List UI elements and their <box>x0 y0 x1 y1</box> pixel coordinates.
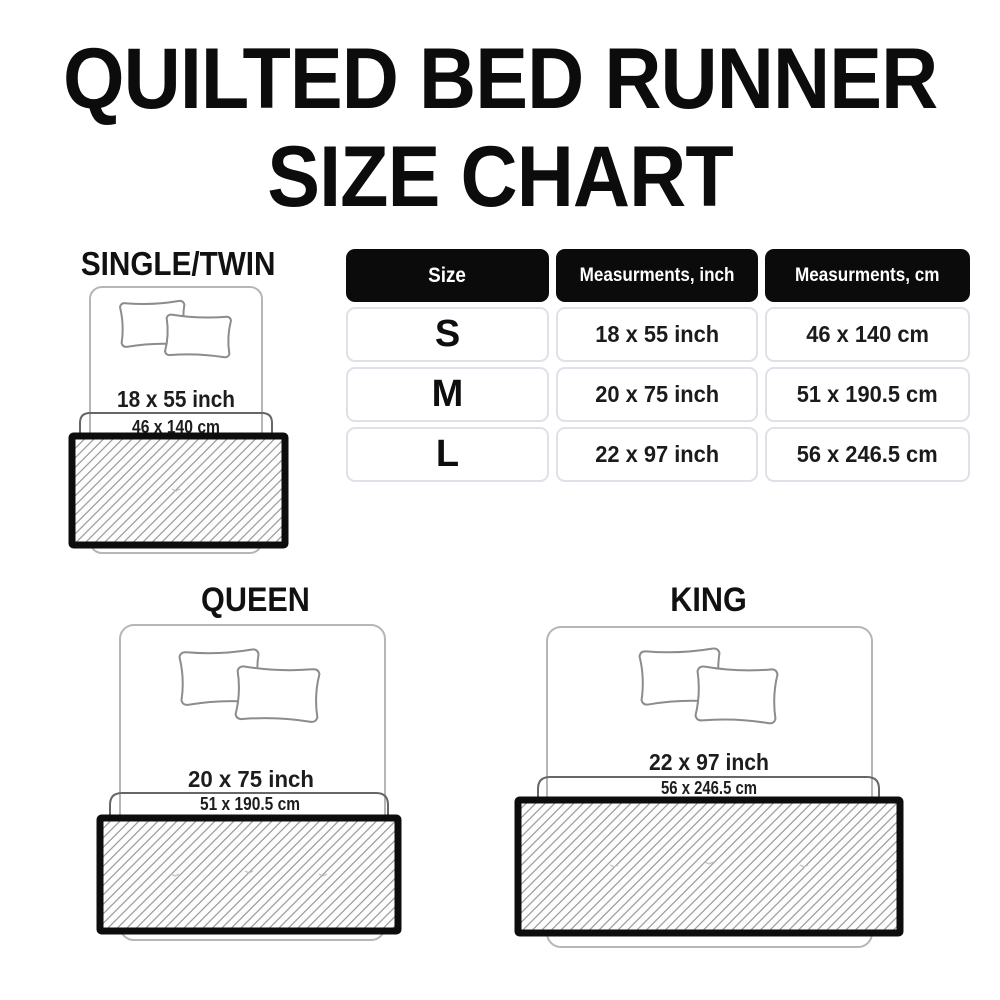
cell-inch: 18 x 55 inch <box>556 307 758 362</box>
queen-cm-dimension: 51 x 190.5 cm <box>200 793 300 814</box>
cell-cm: 56 x 246.5 cm <box>765 427 970 482</box>
queen-bed-diagram: 20 x 75 inch 51 x 190.5 cm <box>93 620 417 957</box>
cell-cm: 51 x 190.5 cm <box>765 367 970 422</box>
cell-inch: 20 x 75 inch <box>556 367 758 422</box>
table-row-m: M 20 x 75 inch 51 x 190.5 cm <box>346 367 970 422</box>
king-label: KING <box>510 580 906 620</box>
page-title-line1: QUILTED BED RUNNER <box>0 30 1000 128</box>
runner-swatch <box>518 800 900 933</box>
cell-inch: 22 x 97 inch <box>556 427 758 482</box>
table-row-s: S 18 x 55 inch 46 x 140 cm <box>346 307 970 362</box>
pillow-icon <box>695 666 777 723</box>
page-title-line2: SIZE CHART <box>0 128 1000 226</box>
cell-size: S <box>346 307 549 362</box>
queen-inch-dimension: 20 x 75 inch <box>188 766 314 792</box>
runner-swatch <box>72 436 285 545</box>
size-chart-infographic: QUILTED BED RUNNER SIZE CHART SINGLE/TWI… <box>0 0 1000 1000</box>
king-bed-diagram: 22 x 97 inch 56 x 246.5 cm <box>510 620 906 957</box>
size-table: Size Measurments, inch Measurments, cm S… <box>346 249 970 482</box>
table-row-l: L 22 x 97 inch 56 x 246.5 cm <box>346 427 970 482</box>
queen-label: QUEEN <box>93 580 417 620</box>
king-inch-dimension: 22 x 97 inch <box>649 749 769 775</box>
king-cm-dimension: 56 x 246.5 cm <box>661 777 757 798</box>
single-twin-bed-diagram: 18 x 55 inch 46 x 140 cm <box>58 285 294 567</box>
cell-size: M <box>346 367 549 422</box>
header-cm: Measurments, cm <box>765 249 970 302</box>
single-inch-dimension: 18 x 55 inch <box>117 386 235 412</box>
cell-cm: 46 x 140 cm <box>765 307 970 362</box>
header-size: Size <box>346 249 549 302</box>
header-inch: Measurments, inch <box>556 249 758 302</box>
single-twin-label: SINGLE/TWIN <box>40 244 316 284</box>
runner-swatch <box>100 818 398 931</box>
table-header-row: Size Measurments, inch Measurments, cm <box>346 249 970 302</box>
cell-size: L <box>346 427 549 482</box>
pillow-icon <box>235 666 319 722</box>
page-title: QUILTED BED RUNNER SIZE CHART <box>0 30 1000 226</box>
pillow-icon <box>165 314 231 357</box>
